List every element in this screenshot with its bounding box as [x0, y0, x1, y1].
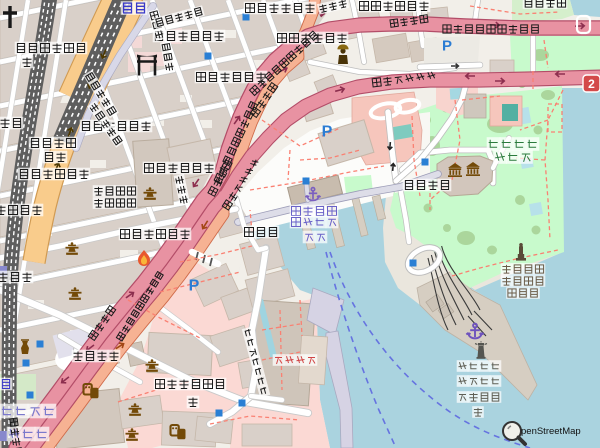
svg-text:P: P — [322, 124, 333, 141]
svg-text:penStreetMap: penStreetMap — [521, 426, 581, 437]
svg-text:P: P — [442, 38, 452, 55]
svg-text:P: P — [189, 278, 200, 295]
svg-text:2: 2 — [588, 77, 595, 91]
